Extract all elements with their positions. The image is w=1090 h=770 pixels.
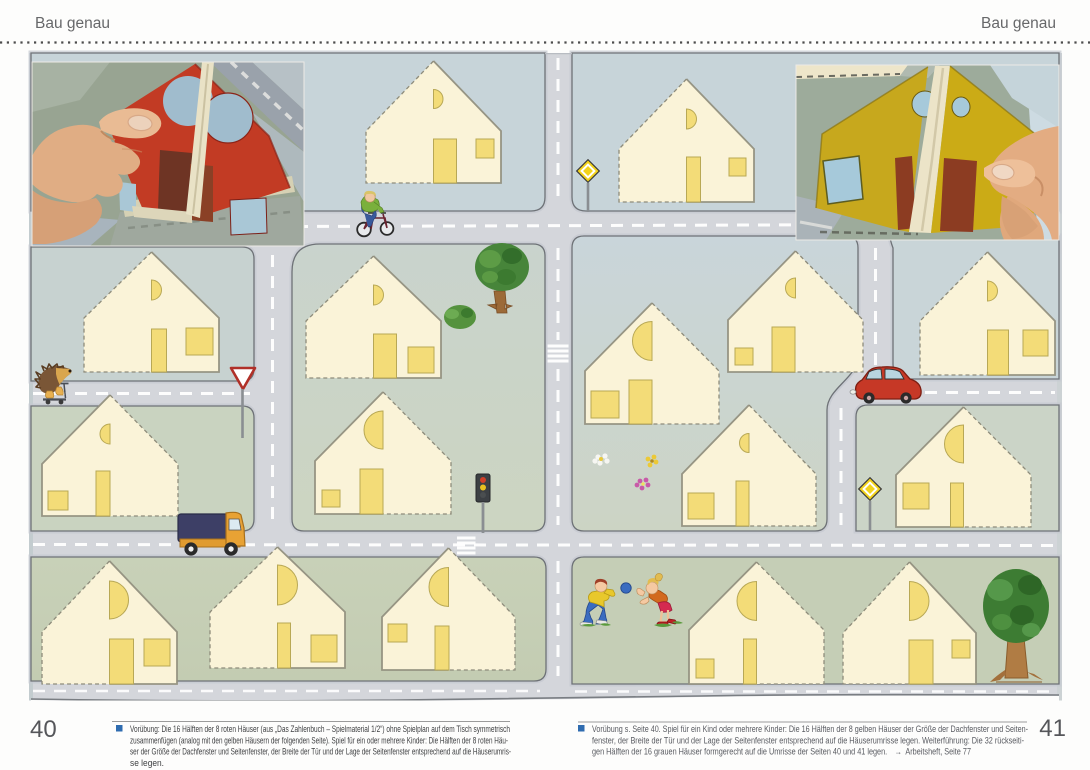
svg-text:41: 41 — [1039, 715, 1066, 742]
svg-text:Vorübung: Die 16 Hälften der 8: Vorübung: Die 16 Hälften der 8 roten Häu… — [130, 724, 511, 768]
svg-text:Bau genau: Bau genau — [35, 15, 110, 32]
svg-text:Vorübung s. Seite 40. Spiel fü: Vorübung s. Seite 40. Spiel für ein Kind… — [592, 724, 1028, 757]
svg-text:40: 40 — [30, 716, 57, 743]
svg-text:Bau genau: Bau genau — [981, 15, 1056, 32]
